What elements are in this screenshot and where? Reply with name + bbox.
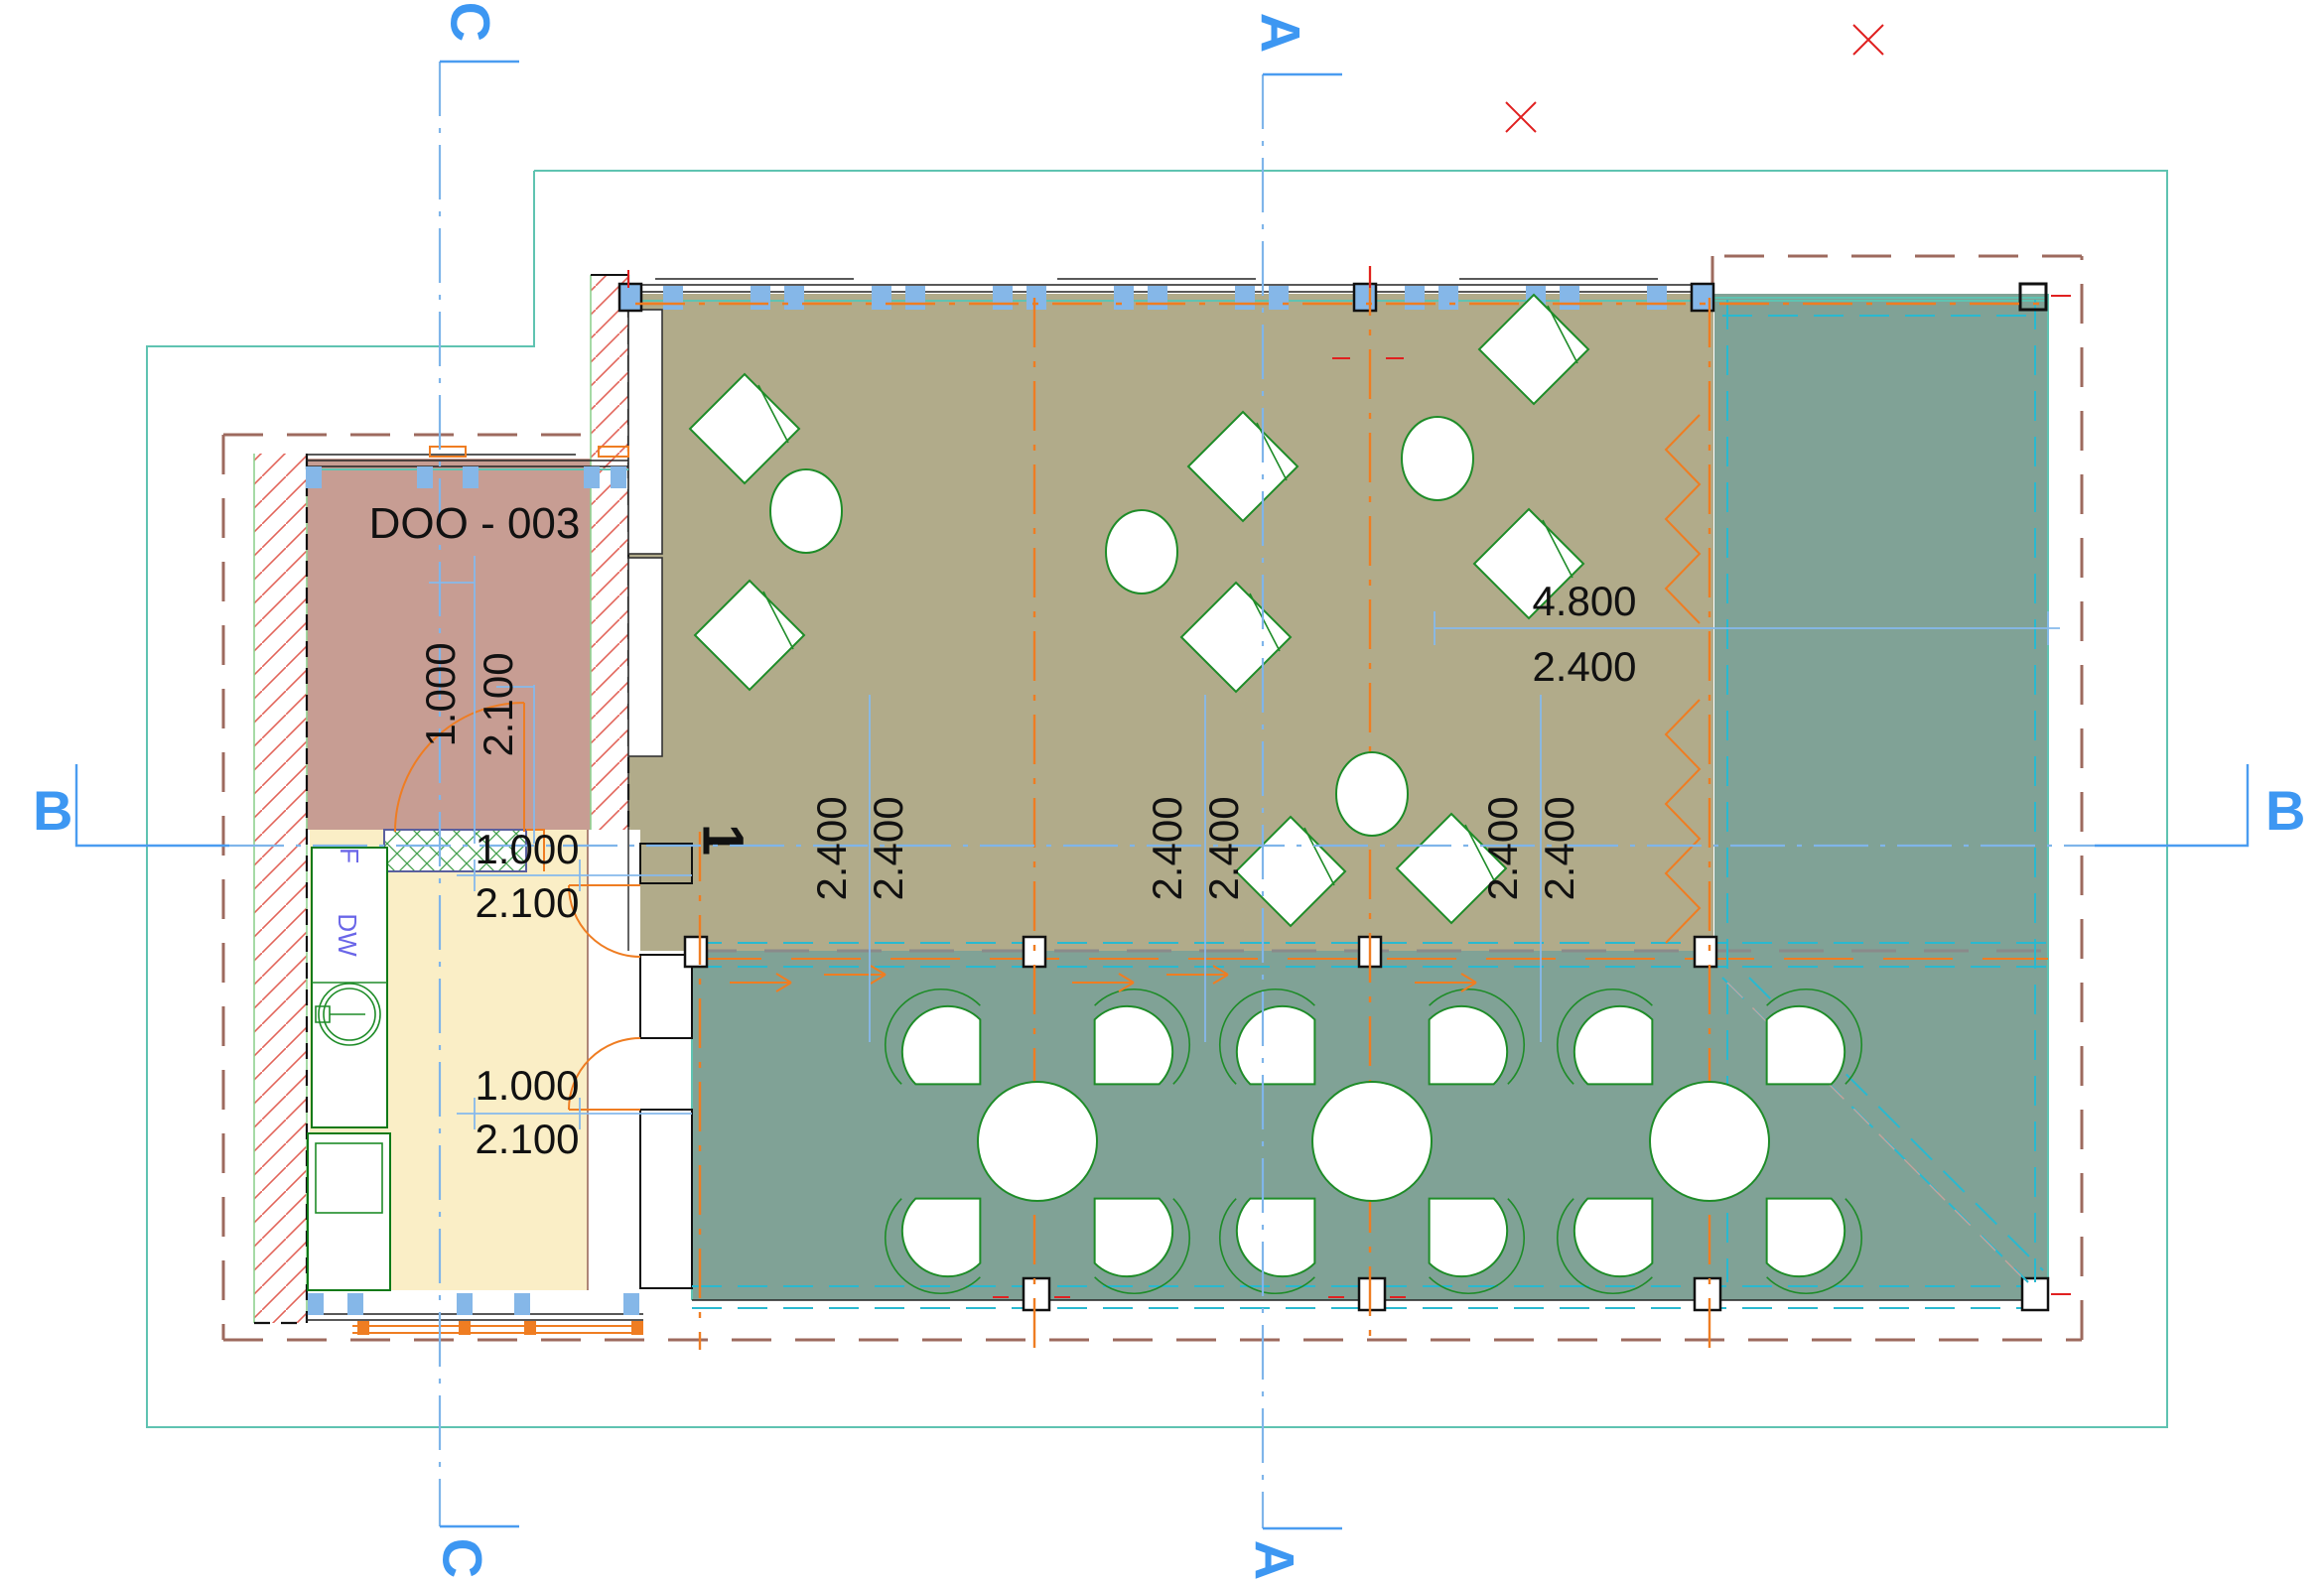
dishwasher-label: DW (333, 913, 362, 957)
room-label: DOO - 003 (369, 499, 581, 548)
section-letter-c-top: C (440, 2, 502, 42)
window-frame (459, 1321, 471, 1335)
dim-span: 4.800 (1532, 578, 1636, 624)
dim-door-height: 2.100 (475, 652, 521, 756)
column (1359, 1278, 1385, 1310)
column (1354, 284, 1376, 311)
hatched-wall-west (254, 454, 307, 1323)
column (685, 937, 707, 967)
dim-door-height: 2.100 (475, 1116, 579, 1162)
dim-door-width: 1.000 (475, 1062, 579, 1109)
column (1695, 937, 1716, 967)
column (1695, 1278, 1720, 1310)
dim-module: 2.400 (1144, 796, 1190, 900)
x-marker (1853, 25, 1883, 55)
x-marker (1506, 102, 1536, 132)
window-frame (524, 1321, 536, 1335)
door-number: 1 (691, 824, 755, 856)
wall-cavity (588, 830, 640, 1290)
column (2022, 1278, 2048, 1310)
dim-module: 2.400 (865, 796, 911, 900)
floor-plan-canvas: 1 F DW (0, 0, 2324, 1584)
dim-span-half: 2.400 (1532, 643, 1636, 690)
dim-module: 2.400 (808, 796, 855, 900)
section-letter-b-right: B (2265, 779, 2305, 842)
column (619, 284, 641, 311)
window-frame (631, 1321, 643, 1335)
kitchen-south-window-wall (306, 1293, 643, 1335)
window-frame (357, 1321, 369, 1335)
dim-module: 2.400 (1536, 796, 1582, 900)
section-letter-c-bottom: C (432, 1538, 494, 1578)
dim-module: 2.400 (1200, 796, 1247, 900)
dim-door-width: 1.000 (475, 826, 579, 872)
dim-module: 2.400 (1479, 796, 1526, 900)
column (1024, 1278, 1049, 1310)
section-letter-b-left: B (33, 779, 72, 842)
kitchen-range (308, 1133, 390, 1290)
section-letter-a-bottom: A (1244, 1540, 1306, 1580)
fridge-label: F (335, 848, 364, 863)
dim-door-width: 1.000 (417, 642, 464, 746)
floor-plan-page: 1 F DW (0, 0, 2324, 1584)
hatched-wall-mid (591, 275, 628, 830)
column (1024, 937, 1045, 967)
section-letter-a-top: A (1250, 13, 1312, 53)
dim-door-height: 2.100 (475, 879, 579, 926)
